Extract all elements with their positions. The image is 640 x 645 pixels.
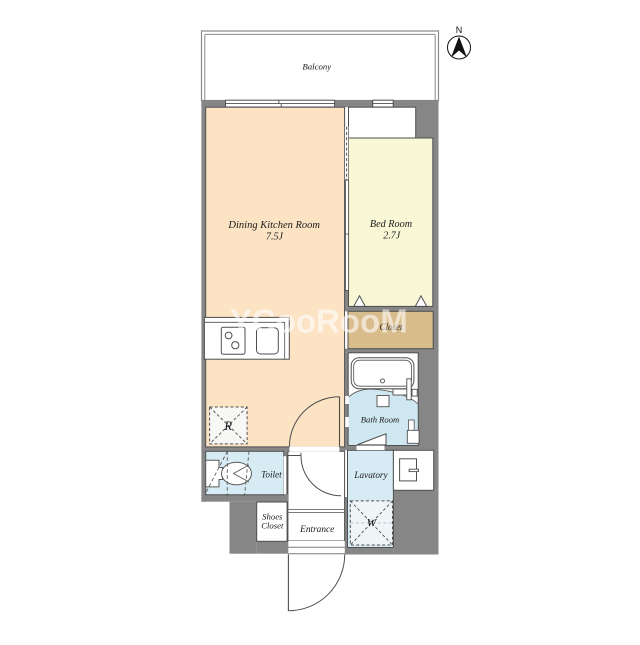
svg-text:Entrance: Entrance bbox=[299, 525, 334, 535]
svg-text:Dining Kitchen Room: Dining Kitchen Room bbox=[227, 220, 320, 231]
svg-text:Bed Room: Bed Room bbox=[370, 219, 412, 230]
svg-text:Closet: Closet bbox=[261, 520, 284, 530]
svg-text:W: W bbox=[367, 517, 378, 529]
svg-text:N: N bbox=[456, 25, 463, 35]
svg-text:7.5J: 7.5J bbox=[266, 232, 284, 243]
svg-text:Toilet: Toilet bbox=[261, 469, 282, 479]
svg-text:Balcony: Balcony bbox=[302, 61, 331, 71]
svg-text:R: R bbox=[223, 419, 232, 433]
svg-text:2.7J: 2.7J bbox=[383, 231, 401, 242]
svg-text:Bath Room: Bath Room bbox=[361, 414, 399, 424]
svg-text:YCooRooM: YCooRooM bbox=[230, 303, 408, 340]
svg-text:Lavatory: Lavatory bbox=[353, 470, 388, 480]
